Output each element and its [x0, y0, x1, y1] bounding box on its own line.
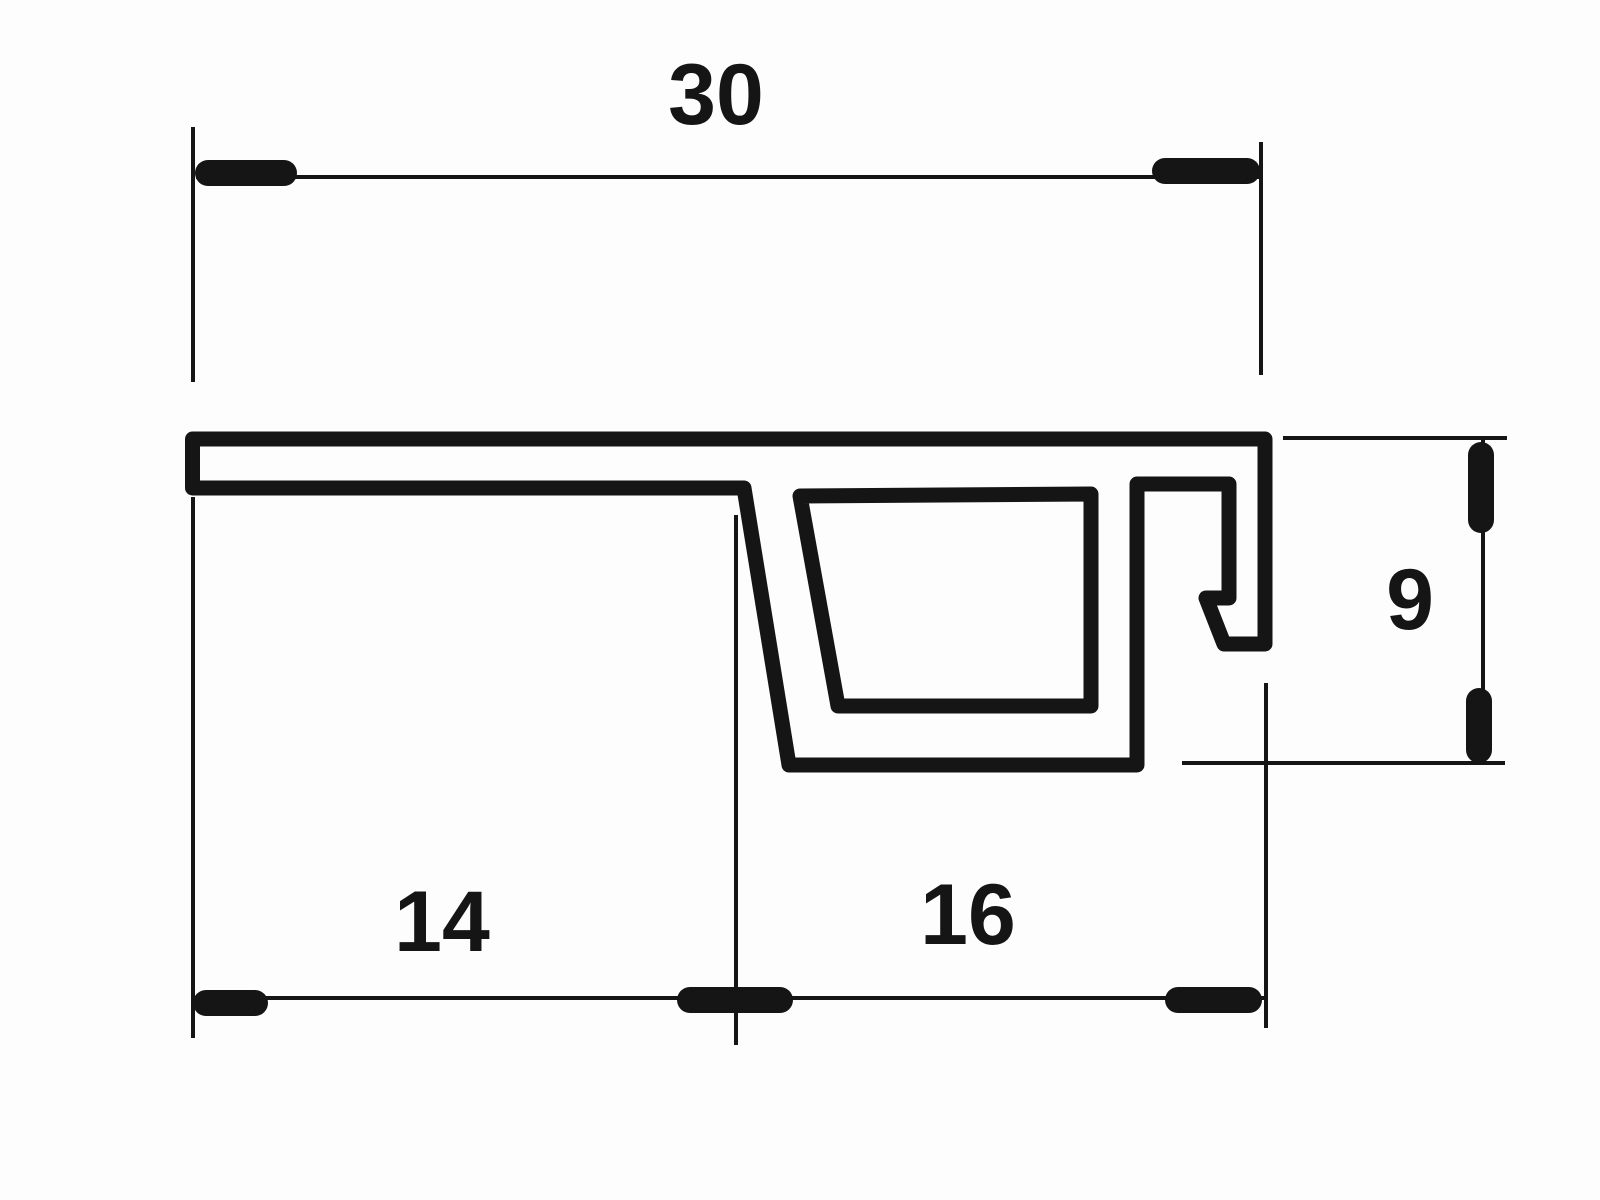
dim-label-bottom-right-width: 16 [920, 867, 1016, 963]
profile-outline-group [193, 439, 1266, 765]
dim-label-right-height: 9 [1386, 552, 1434, 648]
profile-channel-tub [800, 494, 1091, 706]
dim-label-bottom-left-width: 14 [394, 874, 490, 970]
profile-drawing-svg: 30 14 16 9 [0, 0, 1600, 1200]
dimension-labels-group: 30 14 16 9 [394, 47, 1434, 970]
dimension-lines-group [193, 127, 1507, 1045]
technical-drawing-canvas: 30 14 16 9 [0, 0, 1600, 1200]
dim-label-top-width: 30 [668, 47, 764, 143]
profile-main-outline [193, 439, 1266, 765]
